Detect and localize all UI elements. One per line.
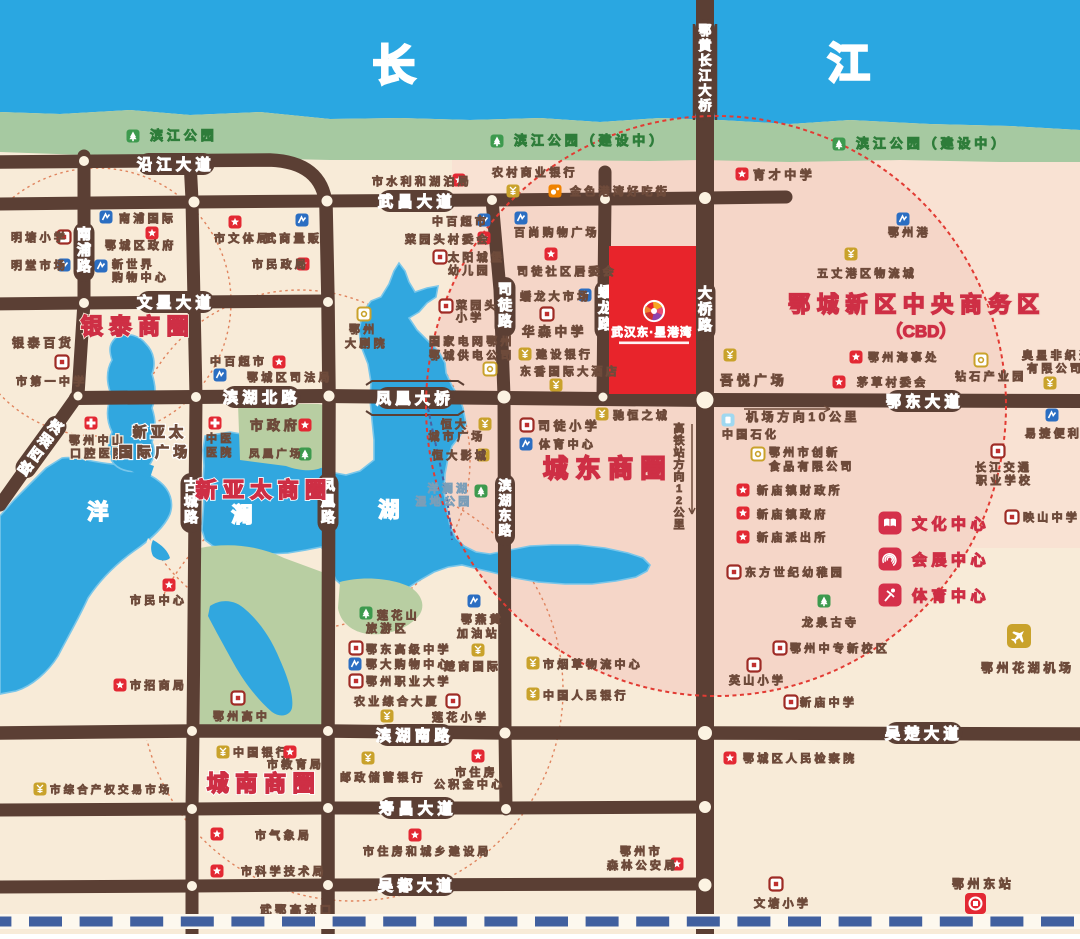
svg-text:大: 大 <box>698 83 711 98</box>
svg-text:鄂州市: 鄂州市 <box>620 844 663 858</box>
svg-text:湖: 湖 <box>498 493 511 508</box>
svg-text:农村商业银行: 农村商业银行 <box>491 165 578 179</box>
svg-text:长江交通: 长江交通 <box>975 460 1032 474</box>
svg-text:金色港湾好吃街: 金色港湾好吃街 <box>569 184 670 198</box>
svg-text:五丈港区物流城: 五丈港区物流城 <box>817 266 917 280</box>
svg-text:职业学校: 职业学校 <box>976 473 1033 487</box>
svg-text:菜园头: 菜园头 <box>455 298 499 312</box>
svg-text:恒大影城: 恒大影城 <box>432 448 489 462</box>
svg-text:鄂: 鄂 <box>698 23 711 38</box>
svg-text:鄂州职业大学: 鄂州职业大学 <box>366 674 452 688</box>
svg-text:滨江公园（建设中）: 滨江公园（建设中） <box>856 136 1008 151</box>
svg-text:体育中心: 体育中心 <box>912 587 990 605</box>
svg-text:钻石产业园: 钻石产业园 <box>955 369 1027 383</box>
svg-text:沿江大道: 沿江大道 <box>137 155 215 173</box>
svg-text:市民中心: 市民中心 <box>130 593 187 607</box>
svg-text:凤凰大桥: 凤凰大桥 <box>376 389 454 407</box>
svg-text:市住房: 市住房 <box>455 765 498 779</box>
svg-text:滨江公园（建设中）: 滨江公园（建设中） <box>514 133 666 148</box>
svg-text:奥星非织造: 奥星非织造 <box>1021 348 1080 362</box>
svg-text:鄂州中专新校区: 鄂州中专新校区 <box>790 641 890 655</box>
svg-text:市文体局: 市文体局 <box>214 231 271 245</box>
svg-text:城东商圈: 城东商圈 <box>543 454 673 483</box>
svg-text:武商量贩: 武商量贩 <box>265 231 322 245</box>
svg-text:寿昌大道: 寿昌大道 <box>379 799 457 817</box>
svg-text:方: 方 <box>674 457 685 471</box>
svg-text:银泰百货: 银泰百货 <box>12 335 74 350</box>
svg-text:市科学技术局: 市科学技术局 <box>241 864 327 878</box>
svg-text:森林公安局: 森林公安局 <box>607 858 679 872</box>
svg-text:莲花小学: 莲花小学 <box>432 710 489 724</box>
svg-text:驰恒之城: 驰恒之城 <box>613 408 670 422</box>
svg-text:文化中心: 文化中心 <box>912 515 990 533</box>
svg-text:国家电网鄂州: 国家电网鄂州 <box>429 334 515 348</box>
svg-text:新亚太商圈: 新亚太商圈 <box>196 478 333 502</box>
svg-text:城市广场: 城市广场 <box>428 429 485 443</box>
svg-text:恒大: 恒大 <box>441 417 470 431</box>
svg-text:国际广场: 国际广场 <box>119 444 192 460</box>
svg-text:市第一中学: 市第一中学 <box>16 374 88 388</box>
svg-text:文塘小学: 文塘小学 <box>754 896 811 910</box>
svg-text:幼儿园: 幼儿园 <box>448 263 491 277</box>
svg-text:滨: 滨 <box>498 478 511 493</box>
svg-text:龙泉古寺: 龙泉古寺 <box>801 615 859 629</box>
svg-text:鄂州高中: 鄂州高中 <box>213 709 270 723</box>
svg-text:中百超市: 中百超市 <box>210 354 267 368</box>
svg-text:高: 高 <box>674 421 685 435</box>
svg-text:路: 路 <box>698 317 713 333</box>
svg-text:浦: 浦 <box>77 242 91 258</box>
svg-text:大剧院: 大剧院 <box>345 336 388 350</box>
svg-text:鄂燕黄: 鄂燕黄 <box>461 612 504 626</box>
svg-text:2: 2 <box>676 495 682 507</box>
svg-text:桥: 桥 <box>698 301 713 317</box>
svg-text:食品有限公司: 食品有限公司 <box>769 459 855 473</box>
svg-text:湖: 湖 <box>378 499 405 522</box>
svg-text:鄂大购物中心: 鄂大购物中心 <box>366 657 452 671</box>
svg-text:司徒社区居委会: 司徒社区居委会 <box>517 264 617 278</box>
svg-text:滨湖南路: 滨湖南路 <box>376 726 454 744</box>
svg-text:有限公司: 有限公司 <box>1027 361 1080 375</box>
svg-text:武昌大道: 武昌大道 <box>378 192 456 210</box>
svg-text:湿地公园: 湿地公园 <box>415 494 472 508</box>
svg-text:旅游区: 旅游区 <box>366 621 409 635</box>
svg-text:中医: 中医 <box>206 431 235 445</box>
svg-text:向: 向 <box>674 469 685 483</box>
svg-text:新庙中学: 新庙中学 <box>800 695 857 709</box>
svg-text:司徒小学: 司徒小学 <box>538 418 600 433</box>
svg-text:市住房和城乡建设局: 市住房和城乡建设局 <box>363 844 492 858</box>
svg-text:市教育局: 市教育局 <box>267 757 324 771</box>
svg-text:公: 公 <box>674 506 685 519</box>
svg-text:东香国际大酒店: 东香国际大酒店 <box>520 364 620 378</box>
svg-text:城南商圈: 城南商圈 <box>207 771 321 796</box>
svg-text:购物中心: 购物中心 <box>112 270 169 284</box>
svg-text:澜: 澜 <box>231 504 258 527</box>
svg-text:路: 路 <box>498 313 513 329</box>
svg-text:黄: 黄 <box>698 38 711 53</box>
svg-text:市气象局: 市气象局 <box>255 828 312 842</box>
svg-text:公积金中心: 公积金中心 <box>434 777 506 791</box>
svg-text:鄂城新区中央商务区: 鄂城新区中央商务区 <box>788 292 1045 317</box>
svg-text:新庙镇财政所: 新庙镇财政所 <box>757 483 843 497</box>
svg-text:映山中学: 映山中学 <box>1023 510 1080 524</box>
svg-text:鄂东大道: 鄂东大道 <box>886 392 964 410</box>
svg-text:桥: 桥 <box>698 98 712 113</box>
svg-text:徒: 徒 <box>497 297 513 313</box>
svg-text:大: 大 <box>698 285 712 301</box>
svg-text:邮政储蓄银行: 邮政储蓄银行 <box>340 770 426 784</box>
svg-text:江: 江 <box>828 40 883 87</box>
svg-text:路: 路 <box>184 509 199 525</box>
svg-text:鄂州东站: 鄂州东站 <box>952 876 1014 891</box>
svg-text:吾悦广场: 吾悦广场 <box>720 373 788 388</box>
svg-text:武汉东·星港湾: 武汉东·星港湾 <box>611 325 692 339</box>
svg-text:茅草村委会: 茅草村委会 <box>857 375 929 389</box>
svg-text:菜园头村委会: 菜园头村委会 <box>404 232 491 246</box>
svg-text:东方世纪幼稚园: 东方世纪幼稚园 <box>745 565 845 579</box>
svg-text:太阳城堡: 太阳城堡 <box>447 250 505 264</box>
svg-text:站: 站 <box>674 445 685 459</box>
svg-text:鄂州海事处: 鄂州海事处 <box>868 350 940 364</box>
svg-text:明塘小学: 明塘小学 <box>11 230 68 244</box>
svg-text:里: 里 <box>674 518 685 531</box>
svg-text:鄂州: 鄂州 <box>349 322 378 336</box>
svg-text:吴楚大道: 吴楚大道 <box>885 724 963 742</box>
svg-text:1: 1 <box>676 483 682 495</box>
svg-text:楚商国际: 楚商国际 <box>444 659 501 673</box>
svg-text:加油站: 加油站 <box>456 626 500 640</box>
svg-text:路: 路 <box>77 258 92 274</box>
svg-text:司: 司 <box>498 281 512 297</box>
svg-text:莲花山: 莲花山 <box>377 608 420 622</box>
svg-text:鄂城区司法局: 鄂城区司法局 <box>247 370 333 384</box>
svg-text:育才中学: 育才中学 <box>753 167 815 182</box>
svg-text:中百超市: 中百超市 <box>432 214 489 228</box>
svg-text:新庙派出所: 新庙派出所 <box>757 530 829 544</box>
svg-text:医院: 医院 <box>206 445 235 459</box>
svg-text:农业综合大厦: 农业综合大厦 <box>353 694 440 708</box>
svg-text:铁: 铁 <box>674 433 685 447</box>
svg-text:市水利和湖泊局: 市水利和湖泊局 <box>372 174 472 188</box>
svg-text:新亚太: 新亚太 <box>133 424 188 440</box>
svg-text:洋澜湖: 洋澜湖 <box>428 481 471 495</box>
svg-text:百尚购物广场: 百尚购物广场 <box>514 225 600 239</box>
svg-text:鄂州市创新: 鄂州市创新 <box>769 445 841 459</box>
svg-text:长: 长 <box>373 42 428 89</box>
svg-text:市招商局: 市招商局 <box>130 678 187 692</box>
svg-text:华森中学: 华森中学 <box>522 324 587 339</box>
svg-text:银泰商圈: 银泰商圈 <box>81 314 195 339</box>
svg-text:东: 东 <box>498 508 511 523</box>
svg-text:路: 路 <box>321 509 336 525</box>
svg-text:英山小学: 英山小学 <box>728 673 786 687</box>
svg-text:吴都大道: 吴都大道 <box>378 876 456 894</box>
svg-text:体育中心: 体育中心 <box>539 437 596 451</box>
svg-text:鄂城区人民检察院: 鄂城区人民检察院 <box>743 751 857 765</box>
svg-text:建设银行: 建设银行 <box>536 347 593 361</box>
svg-text:鄂城供电公司: 鄂城供电公司 <box>429 348 515 362</box>
svg-text:市政府: 市政府 <box>250 418 301 433</box>
svg-text:江: 江 <box>698 68 711 83</box>
svg-text:易捷便利店: 易捷便利店 <box>1025 426 1080 440</box>
svg-text:（CBD）: （CBD） <box>886 321 957 341</box>
svg-text:市民政局: 市民政局 <box>252 257 309 271</box>
svg-text:会展中心: 会展中心 <box>912 551 990 569</box>
svg-text:鄂州港: 鄂州港 <box>888 225 931 239</box>
svg-text:长: 长 <box>698 53 712 68</box>
svg-text:新世界: 新世界 <box>112 257 155 271</box>
svg-text:滨江公园: 滨江公园 <box>150 128 218 143</box>
svg-text:新庙镇政府: 新庙镇政府 <box>757 507 829 521</box>
svg-text:蟠龙大市场: 蟠龙大市场 <box>520 289 592 303</box>
svg-text:明堂市场: 明堂市场 <box>11 258 68 272</box>
svg-text:中国人民银行: 中国人民银行 <box>543 688 629 702</box>
svg-text:南浦国际: 南浦国际 <box>119 211 176 225</box>
svg-text:洋: 洋 <box>87 500 114 524</box>
svg-text:小学: 小学 <box>455 310 485 324</box>
svg-text:文星大道: 文星大道 <box>137 293 215 311</box>
svg-text:市烟草物流中心: 市烟草物流中心 <box>543 657 643 671</box>
svg-text:凤凰广场: 凤凰广场 <box>249 447 303 460</box>
svg-text:鄂州花湖机场: 鄂州花湖机场 <box>981 660 1075 675</box>
svg-text:机场方向10公里: 机场方向10公里 <box>746 409 860 424</box>
svg-text:滨湖北路: 滨湖北路 <box>223 388 301 406</box>
svg-text:鄂城区政府: 鄂城区政府 <box>105 238 177 252</box>
svg-text:路: 路 <box>498 523 512 538</box>
svg-text:南: 南 <box>77 226 91 242</box>
svg-text:中国石化: 中国石化 <box>722 427 779 441</box>
svg-text:鄂东高级中学: 鄂东高级中学 <box>366 642 452 656</box>
svg-text:市综合产权交易市场: 市综合产权交易市场 <box>50 783 172 796</box>
svg-text:中国银行: 中国银行 <box>233 745 290 759</box>
